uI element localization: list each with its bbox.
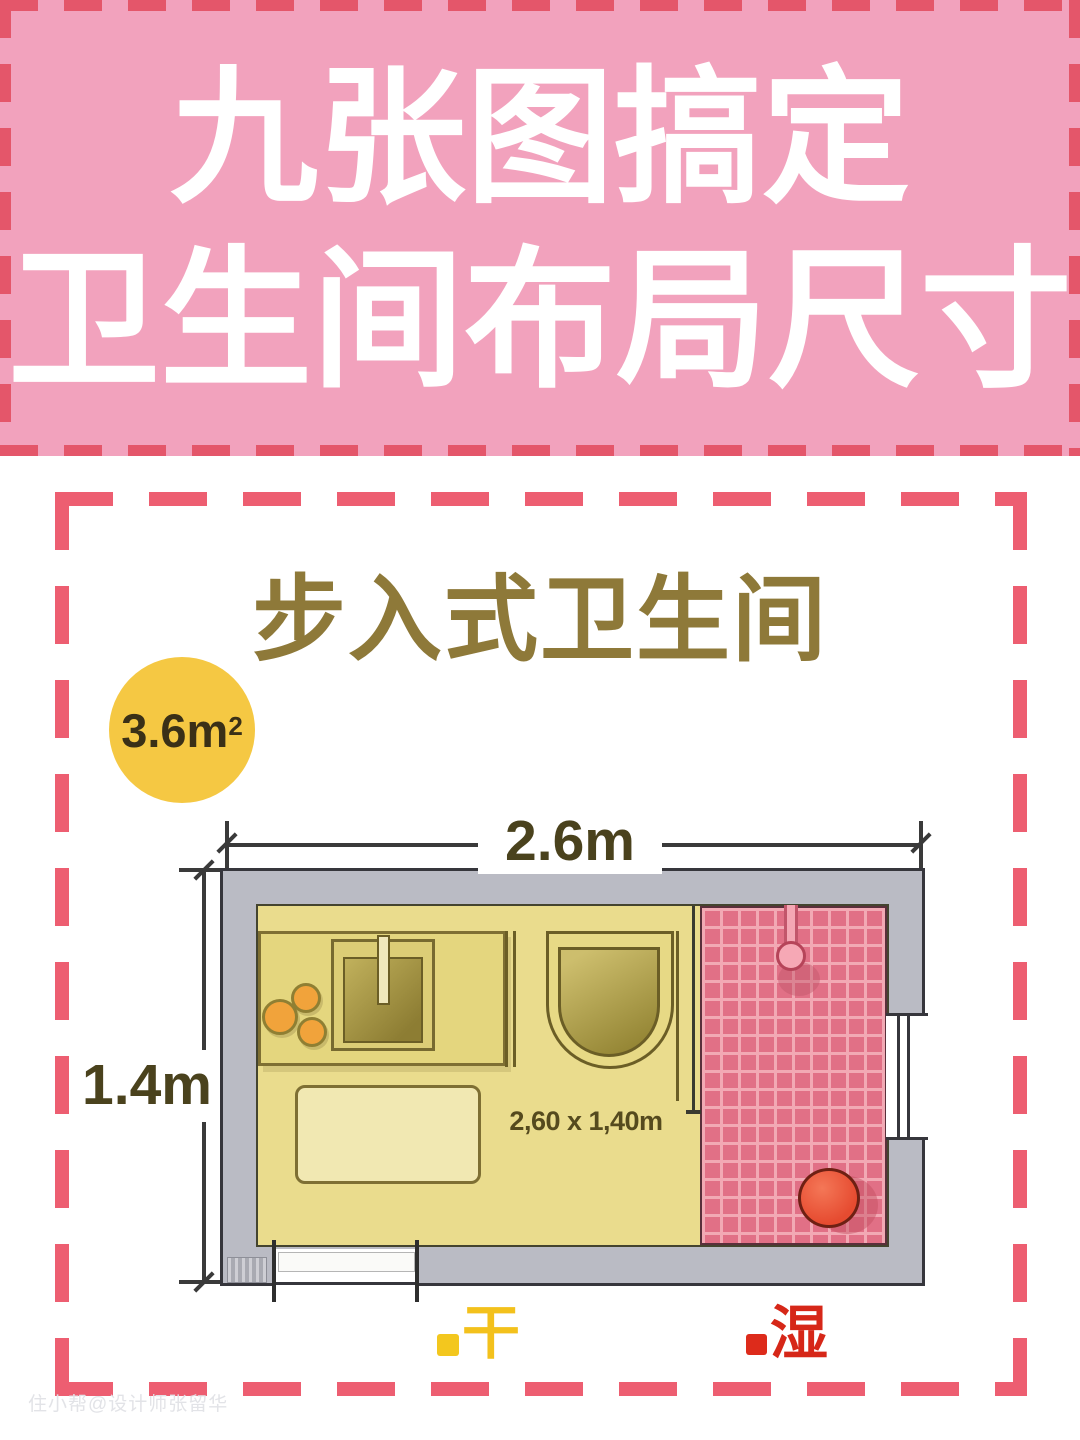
room-size-label: 2,60 x 1,40m bbox=[500, 1106, 672, 1137]
rug bbox=[295, 1085, 481, 1184]
legend-wet-label: 湿 bbox=[770, 1305, 828, 1363]
card-border-top bbox=[55, 492, 1027, 506]
area-badge: 3.6m2 bbox=[109, 657, 255, 803]
glass-partition-cap bbox=[686, 1110, 701, 1114]
faucet bbox=[377, 935, 390, 1005]
width-dimension-label: 2.6m bbox=[478, 808, 662, 874]
door-leaf bbox=[278, 1252, 415, 1272]
glass-partition bbox=[692, 906, 695, 1114]
banner-title-line1: 九张图搞定 bbox=[0, 58, 1080, 221]
toilet-bowl bbox=[558, 947, 660, 1057]
legend-wet-swatch bbox=[746, 1334, 767, 1355]
toilet-guide-left-1 bbox=[505, 931, 508, 1067]
wall-corner-block bbox=[227, 1257, 267, 1283]
watermark: 住小帮@设计师张留华 bbox=[28, 1389, 228, 1416]
door-jamb-right bbox=[415, 1240, 419, 1302]
area-superscript: 2 bbox=[228, 711, 242, 742]
height-dimension-line-upper bbox=[202, 870, 206, 1050]
toilet-guide-right bbox=[676, 931, 679, 1101]
card-border-right bbox=[1013, 492, 1027, 1396]
legend-dry-swatch bbox=[437, 1334, 459, 1356]
area-value: 3.6m bbox=[121, 703, 228, 758]
title-banner: 九张图搞定 卫生间布局尺寸 bbox=[0, 0, 1080, 456]
card-border-left bbox=[55, 492, 69, 1396]
plan-title: 步入式卫生间 bbox=[190, 544, 890, 680]
height-dimension-line-lower bbox=[202, 1122, 206, 1284]
decor-bowl-3 bbox=[297, 1017, 327, 1047]
door-sill bbox=[275, 1282, 418, 1285]
infographic-page: 九张图搞定 卫生间布局尺寸 步入式卫生间 3.6m2 2.6m 1.4m bbox=[0, 0, 1080, 1440]
shower-head-icon bbox=[776, 941, 806, 971]
banner-border-top bbox=[0, 0, 1080, 11]
window-pane-line-1 bbox=[897, 1013, 900, 1140]
decor-bowl-2 bbox=[291, 983, 321, 1013]
banner-title-line2: 卫生间布局尺寸 bbox=[0, 238, 1080, 405]
window-pane-line-2 bbox=[907, 1013, 910, 1140]
banner-border-bottom bbox=[0, 445, 1080, 456]
door-jamb-left bbox=[272, 1240, 276, 1302]
shower-stool bbox=[798, 1168, 860, 1228]
height-dimension-label: 1.4m bbox=[78, 1052, 216, 1118]
toilet-guide-left-2 bbox=[513, 931, 516, 1067]
legend-dry-label: 干 bbox=[462, 1305, 520, 1363]
